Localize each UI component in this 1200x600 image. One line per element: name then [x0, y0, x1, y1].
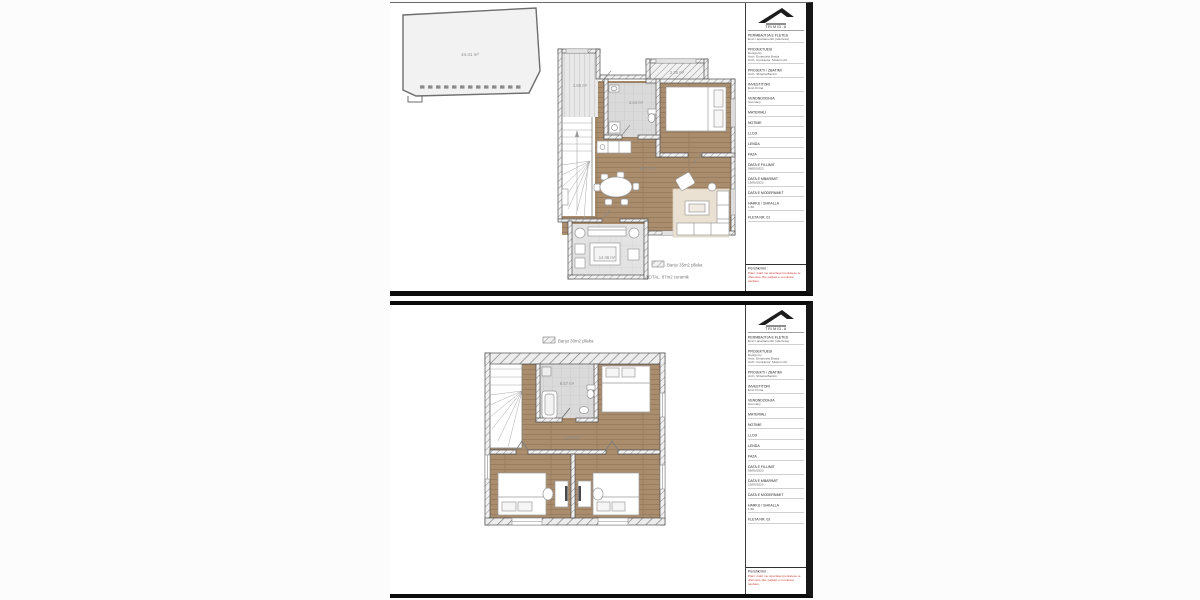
legend-line-1: Banjo 35m2 pllaka — [667, 263, 703, 268]
description-label: Pershkrimi : — [748, 266, 804, 271]
titleblock-field: LLOJI — [748, 434, 804, 440]
titleblock-sheet-1: TRIMID-A PERMBAJTJA E FLETESEmri i apart… — [745, 3, 806, 291]
titleblock-field-value: 1:50 — [748, 206, 804, 210]
drawing-sheet-2[interactable]: Banjo 30m2 pllaka — [390, 301, 813, 598]
monitor — [579, 486, 582, 501]
bath-label: 6.57 m² — [560, 381, 575, 386]
titleblock-field-value: Emri i apartamentit (ndertesa) — [748, 38, 804, 42]
titleblock-field-value: Germany — [748, 403, 804, 407]
titleblock-field-value: Arch. Contractor. Modern Art — [748, 361, 804, 365]
description-text: Plani i katit me siperfaqet perkatese te… — [748, 272, 804, 284]
living-label: 65.73 m² — [640, 166, 657, 171]
titleblock-field: VENDNDODHJAGermany — [748, 97, 804, 107]
company-logo-icon — [751, 307, 801, 327]
titleblock-field: INVESTITORIEmri Firma — [748, 83, 804, 93]
legend-top-label: Banjo 30m2 pllaka — [558, 339, 594, 344]
titleblock-field: MATERIALI — [748, 111, 804, 117]
plan-2-legend: Banjo 30m2 pllaka — [543, 337, 594, 344]
bed — [666, 87, 726, 131]
plan-1-legend: Banjo 35m2 pllaka TOTAL: 87m2 ceramik — [646, 261, 703, 280]
titleblock-field-label: DATA E MODERNIMIT — [748, 494, 804, 498]
titleblock-field: FAZA — [748, 153, 804, 159]
plan-1-drawing: 44.41 m² — [390, 3, 745, 291]
titleblock-field: DATA E MBARIMIT15/05/2023 — [748, 479, 804, 489]
description-label: Pershkrimi : — [748, 569, 804, 574]
titleblock-field-value: Arch. Contractor. Modern Art — [748, 59, 804, 63]
titleblock-field: DATA E MODERNIMIT — [748, 493, 804, 499]
roof-area-label: 44.41 m² — [461, 52, 479, 57]
titleblock-field-label: LLOJI — [748, 132, 804, 136]
titleblock-field-value: Arch. Shtepia Banimi — [748, 375, 804, 379]
staircase-floor — [490, 364, 522, 448]
titleblock-field-value: Emri Firma — [748, 389, 804, 393]
drawing-canvas: 44.41 m² — [0, 0, 1200, 600]
titleblock-field-label: FAZA — [748, 153, 804, 157]
titleblock-field: HARKU / SHKALLA1:50 — [748, 202, 804, 212]
terrace-label: 14.46 m² — [599, 255, 616, 260]
titleblock-field: PROJEKTUESIDesign byArch. Emanuela Brada… — [748, 48, 804, 65]
balcony-left-label: 1.60 m² — [573, 83, 588, 88]
titleblock-field-label: FLETA NR. 02 — [748, 518, 804, 522]
description-box: Pershkrimi : Plani i katit me siperfaqet… — [746, 567, 806, 594]
balcony-right-label: 2.30 m² — [670, 70, 685, 75]
chair — [543, 488, 553, 500]
titleblock-field: LENDA — [748, 444, 804, 450]
titleblock-field-value: 15/05/2023 — [748, 483, 804, 487]
titleblock-field-label: MATERIALI — [748, 111, 804, 115]
titleblock-sheet-2: TRIMID-A PERMBAJTJA E FLETESEmri i apart… — [745, 305, 806, 594]
plan-2-area: Banjo 30m2 pllaka — [390, 305, 745, 594]
titleblock-field-label: NOTIME — [748, 424, 804, 428]
description-text: Plani i katit me siperfaqet perkatese te… — [748, 575, 804, 587]
titleblock-field-label: DATA E MODERNIMIT — [748, 192, 804, 196]
legend-hatch-swatch — [652, 261, 664, 267]
titleblock-field: PROJEKTI / ZBATIMIArch. Shtepia Banimi — [748, 69, 804, 79]
titleblock-field-label: FLETA NR. 01 — [748, 216, 804, 220]
titleblock-field: LENDA — [748, 142, 804, 148]
titleblock-field-value: Arch. Shtepia Banimi — [748, 73, 804, 77]
titleblock-field: DATA E MODERNIMIT — [748, 191, 804, 197]
company-name: TRIMID-A — [748, 26, 804, 31]
titleblock-fields: PERMBAJTJA E FLETESEmri i apartamentit (… — [748, 336, 804, 524]
titleblock-field-value: 1:50 — [748, 508, 804, 512]
legend-hatch-swatch — [543, 337, 555, 343]
titleblock-field-value: Emri Firma — [748, 87, 804, 91]
company-name: TRIMID-A — [748, 328, 804, 333]
titleblock-field: LLOJI — [748, 132, 804, 138]
titleblock-field: PROJEKTUESIDesign byArch. Emanuela Brada… — [748, 350, 804, 367]
titleblock-field-value: 15/05/2023 — [748, 181, 804, 185]
titleblock-field: FAZA — [748, 455, 804, 461]
titleblock-field: FLETA NR. 02 — [748, 518, 804, 524]
titleblock-fields: PERMBAJTJA E FLETESEmri i apartamentit (… — [748, 34, 804, 222]
company-logo-icon — [751, 5, 801, 25]
titleblock-field-label: MATERIALI — [748, 413, 804, 417]
titleblock-field-label: NOTIME — [748, 122, 804, 126]
chair — [593, 488, 603, 500]
description-box: Pershkrimi : Plani i katit me siperfaqet… — [746, 264, 806, 291]
titleblock-field-value: Germany — [748, 101, 804, 105]
drawing-sheet-1[interactable]: 44.41 m² — [390, 2, 813, 296]
bath-label: 3.44 m² — [629, 100, 644, 105]
titleblock-field: INVESTITORIEmri Firma — [748, 385, 804, 395]
plan-2-drawing: Banjo 30m2 pllaka — [390, 305, 745, 594]
bed — [498, 473, 546, 515]
titleblock-field: VENDNDODHJAGermany — [748, 399, 804, 409]
titleblock-field: NOTIME — [748, 121, 804, 127]
hall-label: 54.92 m² — [565, 435, 582, 440]
titleblock-field: DATA E FILLIMIT08/05/2023 — [748, 163, 804, 173]
titleblock-field: PERMBAJTJA E FLETESEmri i apartamentit (… — [748, 336, 804, 346]
titleblock-field: PERMBAJTJA E FLETESEmri i apartamentit (… — [748, 34, 804, 44]
titleblock-field: PROJEKTI / ZBATIMIArch. Shtepia Banimi — [748, 371, 804, 381]
titleblock-field: FLETA NR. 01 — [748, 216, 804, 222]
monitor — [565, 486, 568, 501]
bed — [602, 366, 650, 412]
titleblock-field-value: 08/05/2023 — [748, 167, 804, 171]
titleblock-field-value: Emri i apartamentit (ndertesa) — [748, 340, 804, 344]
legend-line-2: TOTAL: 87m2 ceramik — [646, 275, 690, 280]
titleblock-field: HARKU / SHKALLA1:50 — [748, 504, 804, 514]
titleblock-field-label: LENDA — [748, 143, 804, 147]
titleblock-field-label: LENDA — [748, 445, 804, 449]
roof-plan-outline: 44.41 m² — [403, 8, 540, 102]
radiator — [562, 189, 568, 205]
plan-1-area: 44.41 m² — [390, 3, 745, 291]
titleblock-field: DATA E MBARIMIT15/05/2023 — [748, 177, 804, 187]
titleblock-field: MATERIALI — [748, 413, 804, 419]
titleblock-field-value: 08/05/2023 — [748, 469, 804, 473]
titleblock-field: NOTIME — [748, 423, 804, 429]
titleblock-field-label: FAZA — [748, 455, 804, 459]
titleblock-field-label: LLOJI — [748, 434, 804, 438]
titleblock-field: DATA E FILLIMIT08/05/2023 — [748, 465, 804, 475]
